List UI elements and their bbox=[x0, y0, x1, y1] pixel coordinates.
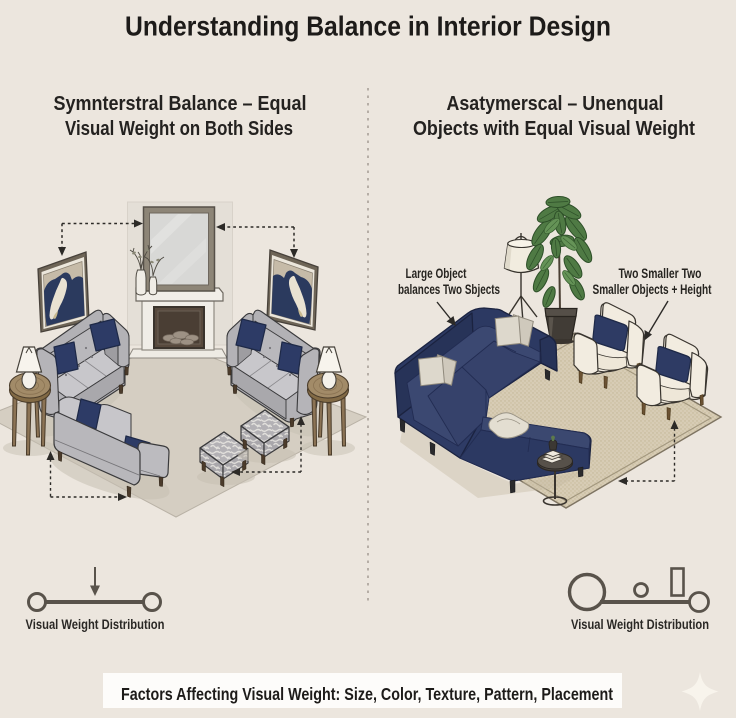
svg-text:Large Object: Large Object bbox=[406, 266, 467, 281]
svg-text:Two Smaller Two: Two Smaller Two bbox=[619, 266, 702, 281]
svg-text:balances Two Sbjects: balances Two Sbjects bbox=[398, 282, 500, 297]
svg-text:Objects with Equal Visual Weig: Objects with Equal Visual Weight bbox=[413, 118, 695, 140]
svg-text:Visual Weight Distribution: Visual Weight Distribution bbox=[26, 616, 165, 632]
svg-text:Symnterstral Balance – Equal: Symnterstral Balance – Equal bbox=[54, 93, 307, 115]
svg-text:Visual Weight on Both Sides: Visual Weight on Both Sides bbox=[65, 118, 293, 140]
svg-text:Understanding Balance in Inter: Understanding Balance in Interior Design bbox=[125, 11, 611, 42]
svg-text:Factors Affecting Visual Weigh: Factors Affecting Visual Weight: Size, C… bbox=[121, 684, 613, 704]
svg-text:Visual Weight Distribution: Visual Weight Distribution bbox=[571, 616, 709, 632]
svg-text:Asatymerscal – Unenqual: Asatymerscal – Unenqual bbox=[447, 93, 664, 115]
svg-text:Smaller Objects + Height: Smaller Objects + Height bbox=[593, 282, 712, 297]
